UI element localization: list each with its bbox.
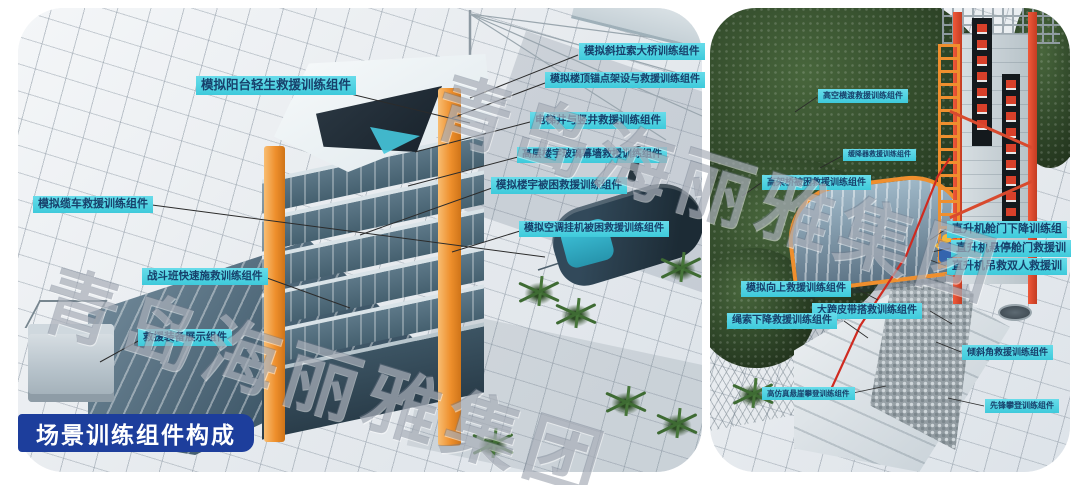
equipment-shed: [28, 324, 114, 402]
plant: [730, 378, 776, 410]
orange-column: [264, 146, 285, 442]
plant: [470, 428, 516, 460]
left-scene-panel: [18, 8, 702, 472]
plant: [553, 298, 599, 330]
plant: [654, 408, 700, 440]
plant: [658, 252, 702, 284]
page-title: 场景训练组件构成: [18, 414, 254, 452]
rescue-mannequin: [942, 234, 951, 243]
plant: [603, 386, 649, 418]
orange-column: [438, 88, 461, 446]
right-scene-panel: [710, 8, 1070, 472]
rescue-mannequin: [939, 242, 952, 262]
cable-car-window: [559, 217, 616, 270]
infographic-page: 模拟阳台轻生救援训练组件模拟缆车救援训练组件模拟斜拉索大桥训练组件模拟楼顶锚点架…: [0, 0, 1086, 485]
